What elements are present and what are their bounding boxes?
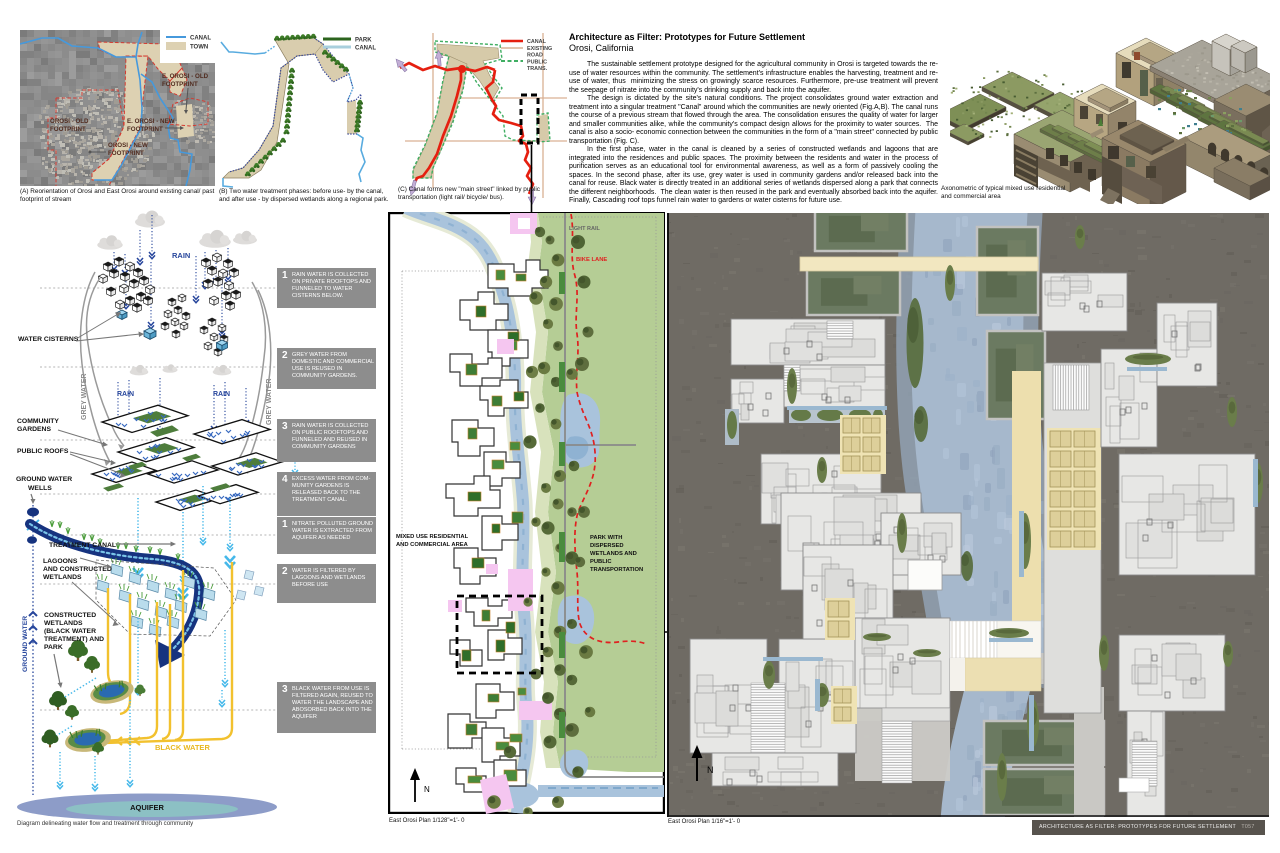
svg-text:E. OROSI - NEW: E. OROSI - NEW: [127, 118, 175, 125]
svg-text:LIGHT RAIL: LIGHT RAIL: [569, 226, 600, 232]
svg-text:N: N: [707, 765, 714, 775]
svg-text:WELLS: WELLS: [28, 485, 52, 492]
svg-text:GARDENS: GARDENS: [17, 426, 51, 433]
svg-text:OROSI - NEW: OROSI - NEW: [108, 142, 148, 149]
svg-text:CONSTRUCTED: CONSTRUCTED: [44, 612, 96, 619]
svg-text:COMMUNITY: COMMUNITY: [17, 418, 59, 425]
svg-text:TRANS.: TRANS.: [527, 66, 548, 72]
svg-text:TREATMENT) AND: TREATMENT) AND: [44, 636, 104, 643]
svg-text:AQUIFER: AQUIFER: [130, 803, 164, 812]
svg-text:TOWN: TOWN: [190, 45, 208, 51]
svg-text:WETLANDS AND: WETLANDS AND: [590, 551, 637, 557]
svg-text:PARK: PARK: [44, 644, 63, 651]
svg-text:FOOTPRINT: FOOTPRINT: [162, 81, 198, 88]
svg-text:PUBLIC: PUBLIC: [527, 60, 547, 66]
svg-text:GREY WATER: GREY WATER: [266, 379, 273, 425]
svg-text:WETLANDS: WETLANDS: [43, 574, 82, 581]
svg-text:N: N: [424, 785, 430, 794]
svg-text:OROSI - OLD: OROSI - OLD: [50, 118, 89, 125]
svg-text:GREY WATER: GREY WATER: [81, 374, 88, 420]
svg-text:CANAL: CANAL: [190, 36, 211, 42]
svg-text:RAIN: RAIN: [117, 391, 134, 398]
svg-text:FOOTPRINT: FOOTPRINT: [108, 150, 144, 157]
svg-text:TRANSPORTATION: TRANSPORTATION: [590, 567, 643, 573]
svg-text:EXISTING: EXISTING: [527, 46, 552, 52]
svg-text:AND COMMERCIAL AREA: AND COMMERCIAL AREA: [396, 542, 469, 548]
svg-text:CANAL: CANAL: [527, 39, 547, 45]
svg-text:FOOTPRINT: FOOTPRINT: [50, 126, 86, 133]
svg-text:PARK: PARK: [355, 38, 372, 44]
svg-text:BIKE LANE: BIKE LANE: [576, 257, 607, 263]
svg-text:GROUND WATER: GROUND WATER: [22, 616, 29, 672]
svg-text:CANAL: CANAL: [355, 46, 376, 52]
svg-text:PUBLIC: PUBLIC: [590, 559, 612, 565]
svg-text:GROUND WATER: GROUND WATER: [16, 476, 72, 483]
svg-text:BLACK WATER: BLACK WATER: [155, 743, 210, 752]
svg-text:WETLANDS: WETLANDS: [44, 620, 83, 627]
svg-text:TREATMENT CANAL: TREATMENT CANAL: [49, 542, 116, 549]
svg-text:DISPERSED: DISPERSED: [590, 543, 624, 549]
svg-text:WATER CISTERNS: WATER CISTERNS: [18, 336, 79, 343]
svg-text:PARK WITH: PARK WITH: [590, 535, 622, 541]
svg-text:RAIN: RAIN: [172, 251, 190, 260]
svg-text:AND CONSTRUCTED: AND CONSTRUCTED: [43, 566, 112, 573]
svg-text:ROAD: ROAD: [527, 53, 543, 59]
svg-text:(BLACK WATER: (BLACK WATER: [44, 628, 96, 635]
svg-text:PUBLIC ROOFS: PUBLIC ROOFS: [17, 448, 69, 455]
svg-text:FOOTPRINT: FOOTPRINT: [127, 126, 163, 133]
svg-text:RAIN: RAIN: [213, 391, 230, 398]
svg-text:LAGOONS: LAGOONS: [43, 558, 78, 565]
svg-text:E. OROSI - OLD: E. OROSI - OLD: [162, 73, 209, 80]
svg-text:MIXED USE RESIDENTIAL: MIXED USE RESIDENTIAL: [396, 534, 469, 540]
